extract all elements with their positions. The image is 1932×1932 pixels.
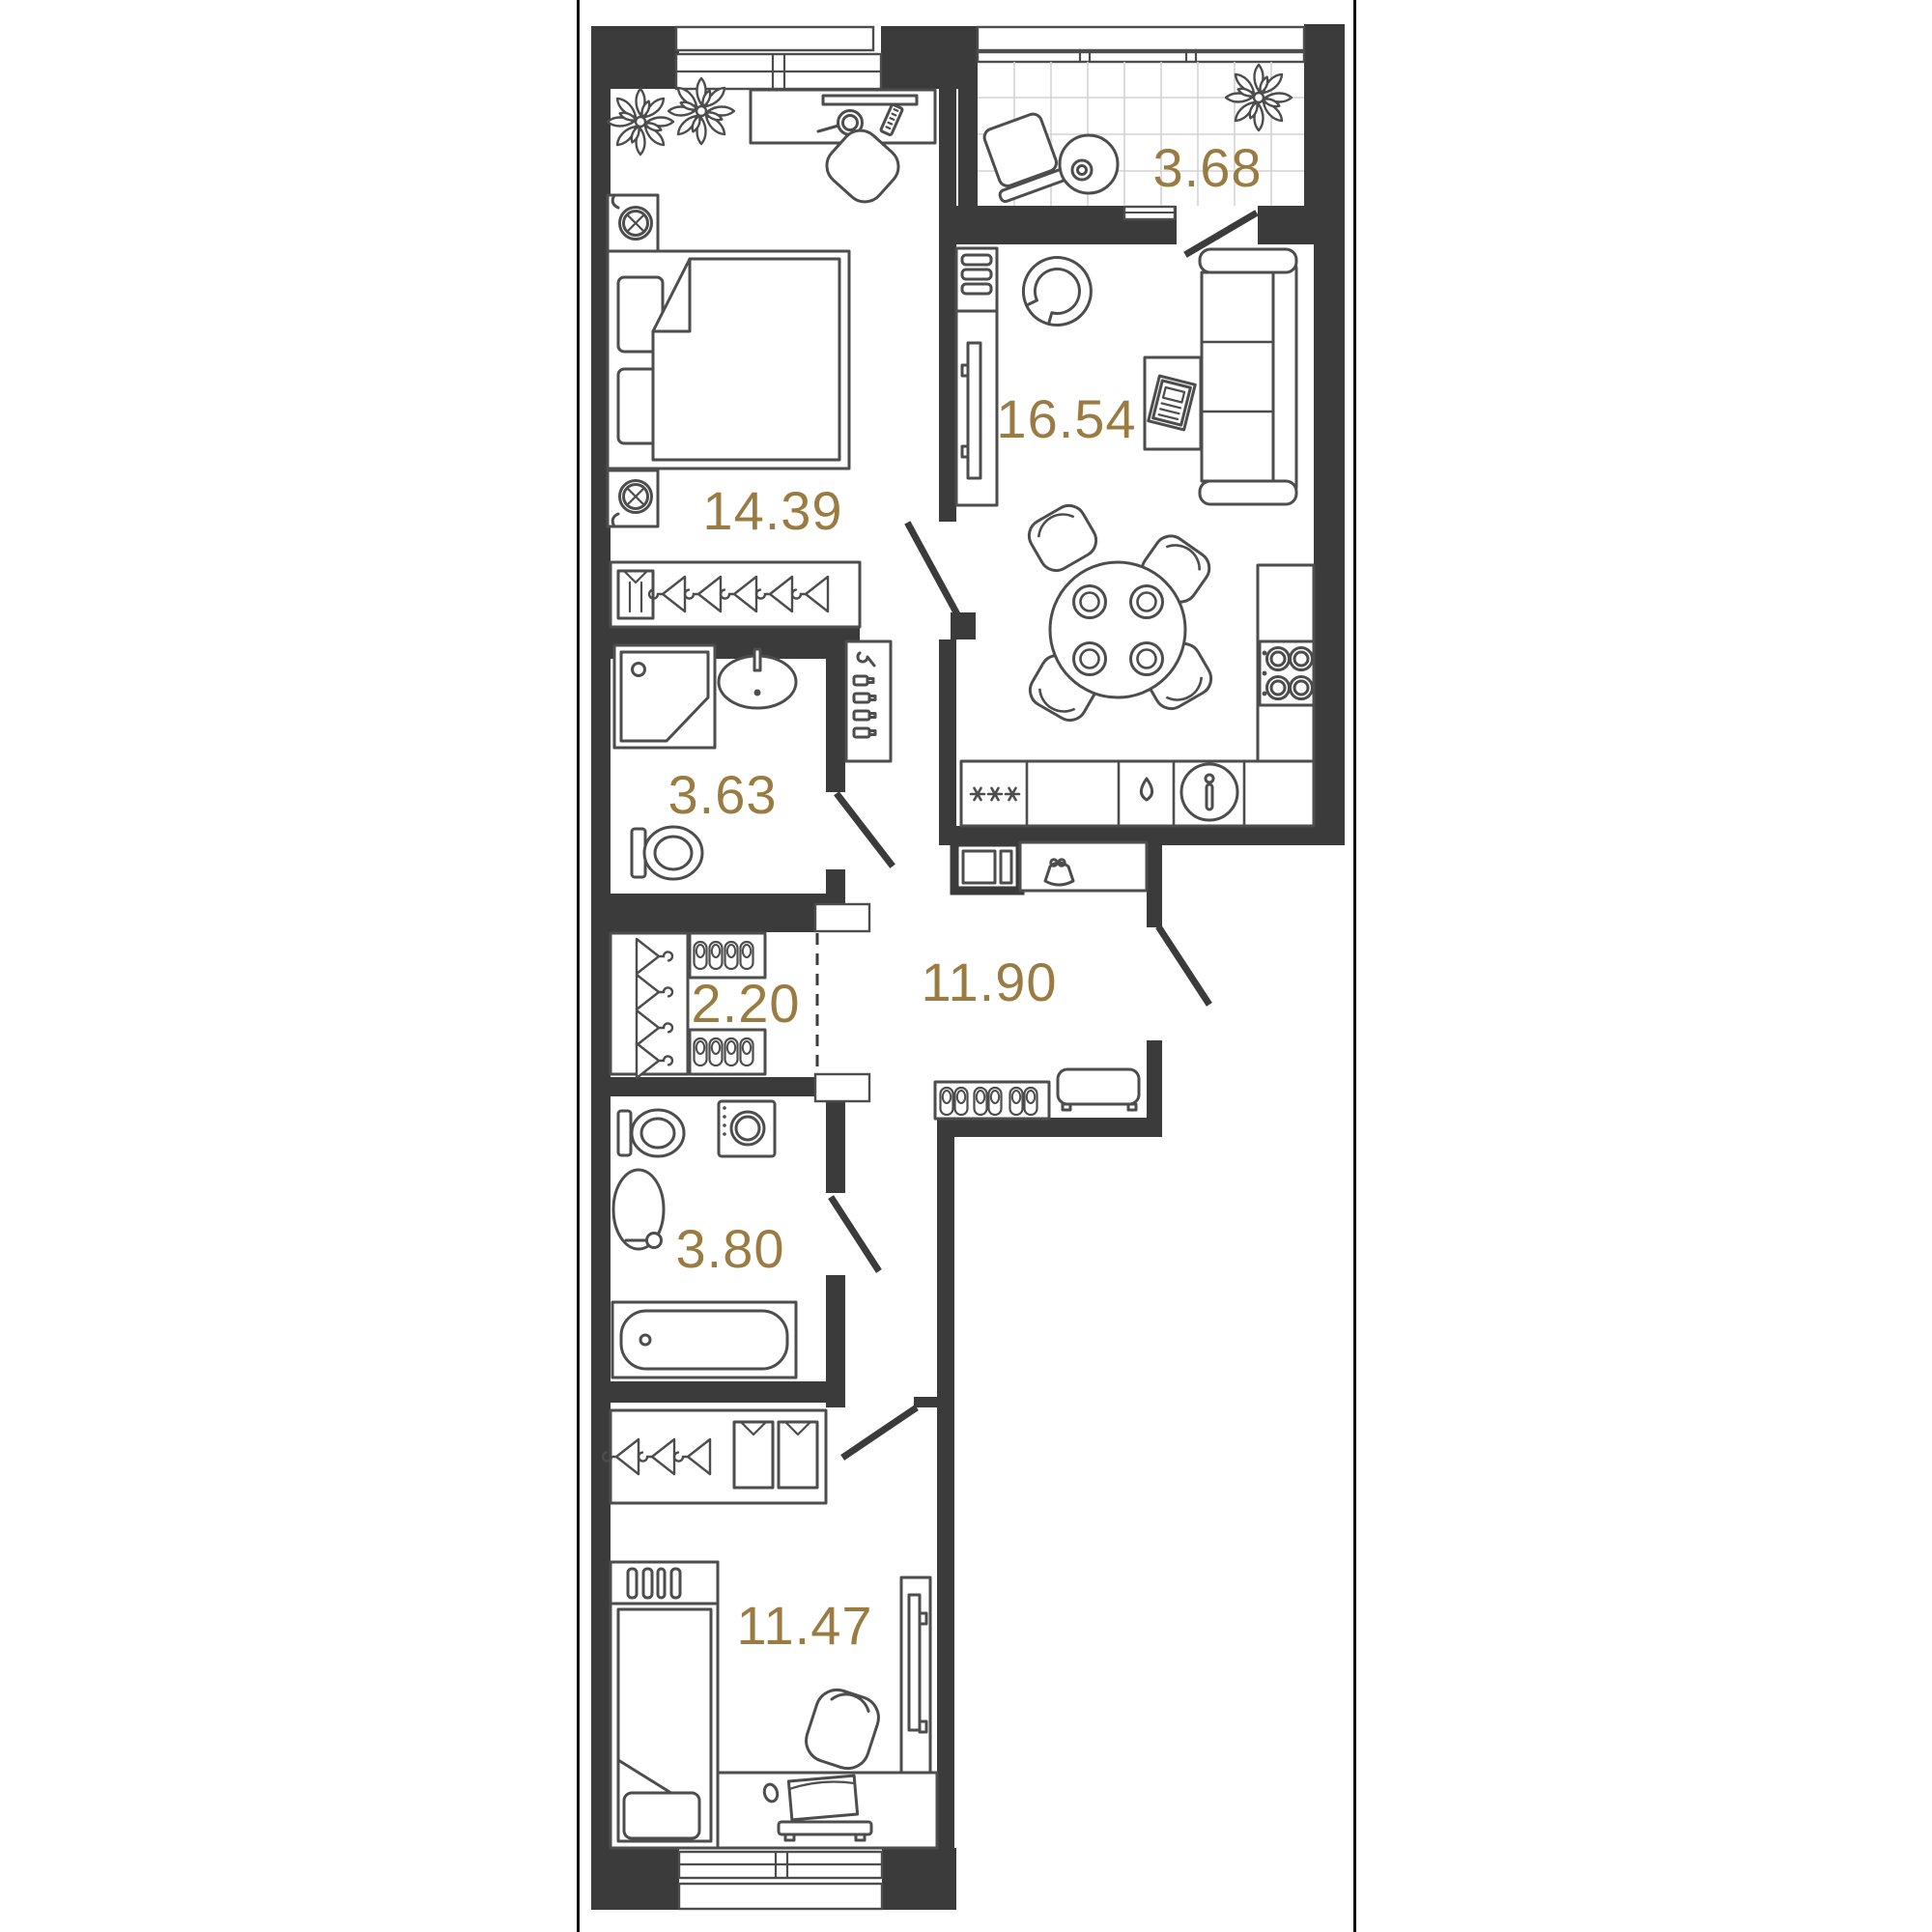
room-living-kitchen bbox=[956, 214, 1314, 826]
desk-chair bbox=[801, 1685, 884, 1775]
entrance-door-leaf bbox=[1160, 929, 1207, 1002]
slipper-icon bbox=[1025, 1088, 1037, 1115]
electric-panel bbox=[954, 842, 1020, 891]
laptop-icon bbox=[788, 1776, 857, 1820]
bathtub bbox=[612, 1302, 796, 1378]
desk bbox=[718, 1773, 937, 1848]
hob bbox=[1260, 641, 1314, 705]
label-bathroom-2: 3.80 bbox=[676, 1218, 785, 1279]
cosmetic-shelf bbox=[846, 641, 891, 761]
slipper-icon bbox=[725, 942, 738, 969]
page-border-left bbox=[577, 0, 580, 1932]
loggia-chair bbox=[978, 110, 1068, 203]
label-loggia: 3.68 bbox=[1153, 137, 1263, 198]
label-living-kitchen: 16.54 bbox=[996, 388, 1136, 449]
floor-plan: 3.68 16.54 14.39 3.63 2.20 11.90 3.80 11… bbox=[0, 0, 1932, 1932]
loggia-glazing bbox=[978, 27, 1304, 62]
double-bed bbox=[608, 251, 849, 469]
cup-icon bbox=[1074, 643, 1106, 675]
nightstand-lamp-bottom bbox=[608, 470, 658, 526]
nightstand-lamp-top bbox=[608, 195, 658, 251]
plant-icon bbox=[1226, 65, 1292, 130]
slipper-icon bbox=[741, 942, 753, 969]
label-hallway: 11.90 bbox=[922, 952, 1058, 1012]
console-shelf bbox=[1020, 842, 1147, 891]
bedroom-2-door-leaf bbox=[845, 1409, 914, 1456]
loggia-door-sill bbox=[1124, 207, 1175, 219]
bathroom-2-door-leaf bbox=[833, 1200, 877, 1268]
sofa bbox=[1200, 249, 1296, 504]
slipper-icon bbox=[725, 1038, 738, 1065]
wardrobe-open bbox=[611, 562, 860, 627]
shower-cabin bbox=[614, 645, 715, 748]
desk bbox=[751, 90, 935, 143]
door-frame-block bbox=[815, 1074, 869, 1101]
label-bathroom-1: 3.63 bbox=[668, 764, 778, 825]
folded-shirt-icon bbox=[618, 571, 653, 618]
label-bedroom-1: 14.39 bbox=[702, 480, 842, 541]
slipper-icon bbox=[955, 1088, 968, 1115]
bench bbox=[1058, 1069, 1139, 1110]
slipper-icon bbox=[710, 942, 723, 969]
coffee-table bbox=[1145, 357, 1201, 449]
label-bedroom-2: 11.47 bbox=[737, 1595, 873, 1656]
folded-shirt-icon bbox=[734, 1422, 773, 1488]
plant-icon bbox=[608, 89, 673, 155]
folded-shirt-icon bbox=[779, 1422, 817, 1488]
dining-table bbox=[1023, 499, 1217, 725]
page-border-right bbox=[1353, 0, 1356, 1932]
loggia-table bbox=[1060, 135, 1118, 193]
tv-shelf bbox=[956, 248, 997, 311]
tv-console bbox=[901, 1577, 930, 1773]
slipper-icon bbox=[941, 1088, 953, 1115]
kitchen-sink bbox=[1181, 764, 1237, 820]
washing-machine bbox=[719, 1101, 775, 1156]
slipper-icon bbox=[975, 1088, 987, 1115]
toilet bbox=[632, 827, 702, 879]
slipper-icon bbox=[989, 1088, 1002, 1115]
slipper-icon bbox=[695, 1038, 707, 1065]
cup-icon bbox=[1074, 586, 1106, 618]
shoe-shelf-top bbox=[690, 933, 765, 978]
cup-icon bbox=[1131, 643, 1163, 675]
single-bed bbox=[611, 1562, 718, 1848]
kitchen-counter bbox=[961, 761, 1314, 826]
bedroom-1-window bbox=[676, 27, 881, 89]
loggia-door-leaf bbox=[1188, 214, 1254, 253]
cup-icon bbox=[1131, 586, 1163, 618]
slipper-icon bbox=[695, 942, 707, 969]
shoe-rack bbox=[935, 1082, 1049, 1119]
dining-chair bbox=[1023, 499, 1102, 576]
tv-console bbox=[956, 311, 997, 505]
door-frame-block bbox=[815, 904, 869, 931]
bathroom-1-door-leaf bbox=[838, 796, 891, 864]
slipper-icon bbox=[741, 1038, 753, 1065]
shoe-shelf-bottom bbox=[690, 1030, 765, 1074]
slipper-icon bbox=[1010, 1088, 1023, 1115]
slipper-icon bbox=[710, 1038, 723, 1065]
floor-plan-page: 3.68 16.54 14.39 3.63 2.20 11.90 3.80 11… bbox=[0, 0, 1932, 1932]
bedroom-2-window bbox=[679, 1852, 882, 1909]
label-wardrobe: 2.20 bbox=[692, 973, 801, 1034]
plant-icon bbox=[668, 78, 734, 144]
armchair bbox=[1009, 243, 1105, 339]
toilet bbox=[618, 1110, 684, 1156]
washbasin bbox=[613, 1170, 664, 1249]
bedroom-1-door-leaf bbox=[909, 526, 957, 614]
counter-right bbox=[1258, 565, 1314, 761]
wardrobe-open bbox=[603, 1410, 826, 1503]
room-bedroom-1 bbox=[608, 78, 935, 627]
